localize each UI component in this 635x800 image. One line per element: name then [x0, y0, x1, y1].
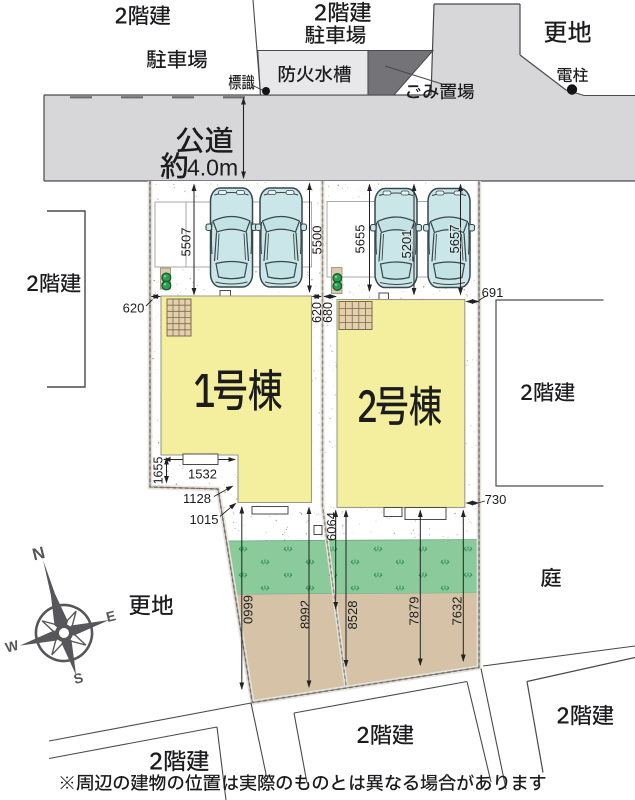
svg-text:1128: 1128	[183, 491, 211, 506]
svg-text:4.0m: 4.0m	[187, 155, 238, 181]
svg-text:8992: 8992	[297, 600, 312, 629]
svg-text:7632: 7632	[449, 597, 464, 626]
svg-text:691: 691	[482, 285, 504, 300]
svg-text:5655: 5655	[352, 225, 367, 254]
svg-text:5201: 5201	[399, 230, 414, 259]
svg-text:5507: 5507	[178, 228, 193, 257]
svg-text:1015: 1015	[190, 512, 219, 527]
svg-text:730: 730	[485, 492, 507, 507]
svg-text:620: 620	[123, 301, 145, 316]
svg-text:1655: 1655	[152, 457, 166, 485]
svg-text:6064: 6064	[324, 512, 339, 541]
svg-text:1532: 1532	[188, 467, 217, 482]
svg-text:680: 680	[321, 302, 335, 323]
svg-text:5657: 5657	[447, 225, 462, 254]
svg-text:8528: 8528	[345, 601, 360, 630]
svg-text:0999: 0999	[241, 595, 256, 624]
svg-text:7879: 7879	[407, 597, 422, 626]
svg-text:5500: 5500	[309, 226, 324, 255]
